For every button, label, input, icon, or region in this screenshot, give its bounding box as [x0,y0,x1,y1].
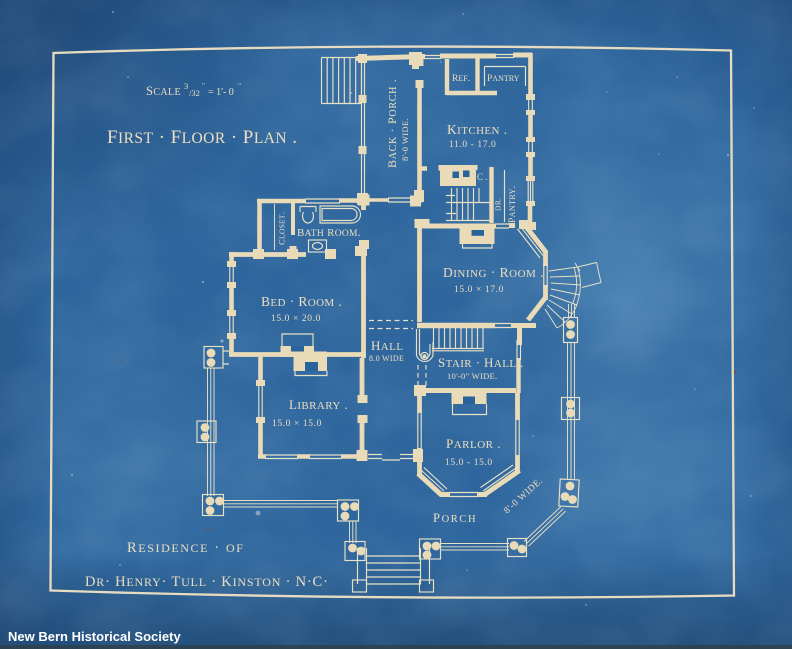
svg-text:FIRST · FLOOR · PLAN .: FIRST · FLOOR · PLAN . [107,127,297,148]
svg-text:DR· HENRY· TULL · KINSTON · N·: DR· HENRY· TULL · KINSTON · N·C· [85,574,329,590]
svg-text:New Bern Historical Society: New Bern Historical Society [8,629,181,644]
svg-text:RESIDENCE · OF: RESIDENCE · OF [127,540,245,556]
svg-text:DR.: DR. [494,198,503,212]
svg-text:BATH ROOM.: BATH ROOM. [297,227,361,239]
svg-text:11.0 - 17.0: 11.0 - 17.0 [449,140,496,150]
svg-text:15.0 - 15.0: 15.0 - 15.0 [445,458,493,468]
svg-text:PANTRY.: PANTRY. [508,185,518,223]
svg-text:/32: /32 [189,88,200,98]
svg-text:PANTRY: PANTRY [487,74,520,84]
svg-text:PORCH: PORCH [433,511,477,525]
svg-text:": " [238,81,241,90]
svg-text:3: 3 [184,81,188,91]
svg-text:15.0 × 20.0: 15.0 × 20.0 [271,314,321,324]
svg-text:": " [202,81,205,90]
svg-text:CLOSET.: CLOSET. [277,212,287,245]
svg-text:PARLOR .: PARLOR . [446,436,501,451]
svg-text:STAIR · HALL .: STAIR · HALL . [438,355,524,370]
svg-text:SCALE: SCALE [146,84,181,98]
svg-text:HALL: HALL [371,338,403,353]
svg-text:BACK · PORCH .: BACK · PORCH . [385,79,399,168]
svg-text:KITCHEN .: KITCHEN . [447,122,507,137]
svg-text:BED · ROOM .: BED · ROOM . [261,294,342,309]
svg-text:15.0 × 17.0: 15.0 × 17.0 [454,285,504,295]
svg-text:LIBRARY .: LIBRARY . [289,397,348,412]
svg-text:15.0 × 15.0: 15.0 × 15.0 [272,419,322,429]
svg-text:10'-0" WIDE.: 10'-0" WIDE. [447,371,497,381]
svg-text:= 1'- 0: = 1'- 0 [208,87,234,98]
svg-text:DINING · ROOM .: DINING · ROOM . [443,265,544,280]
svg-text:8'-0 WIDE.: 8'-0 WIDE. [400,118,410,161]
svg-text:REF.: REF. [452,74,470,84]
svg-text:8.0 WIDE: 8.0 WIDE [369,354,404,363]
svg-text:C .: C . [477,172,488,182]
